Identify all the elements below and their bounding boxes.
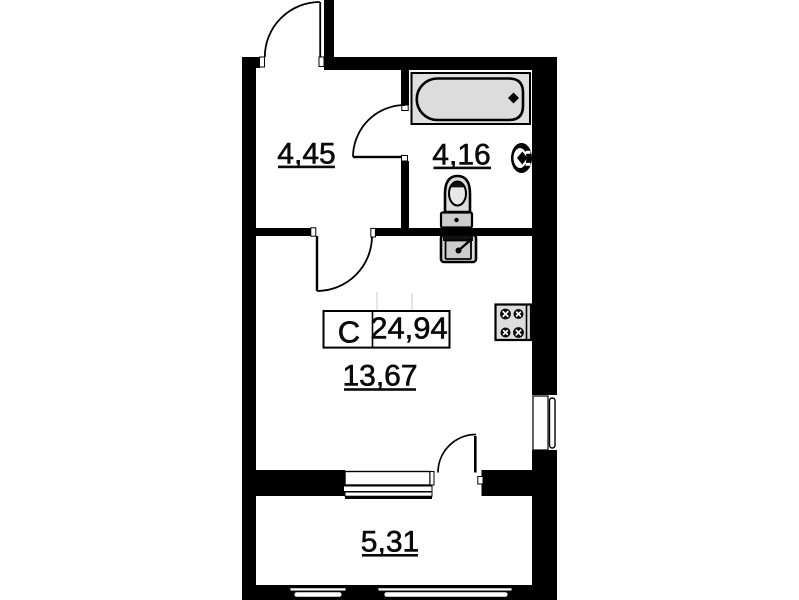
svg-text:13,67: 13,67 — [342, 360, 417, 393]
svg-text:4,16: 4,16 — [432, 138, 490, 171]
svg-text:C: C — [338, 315, 360, 350]
svg-text:24,94: 24,94 — [370, 311, 448, 346]
svg-text:5,31: 5,31 — [361, 525, 419, 558]
svg-text:4,45: 4,45 — [277, 138, 335, 171]
